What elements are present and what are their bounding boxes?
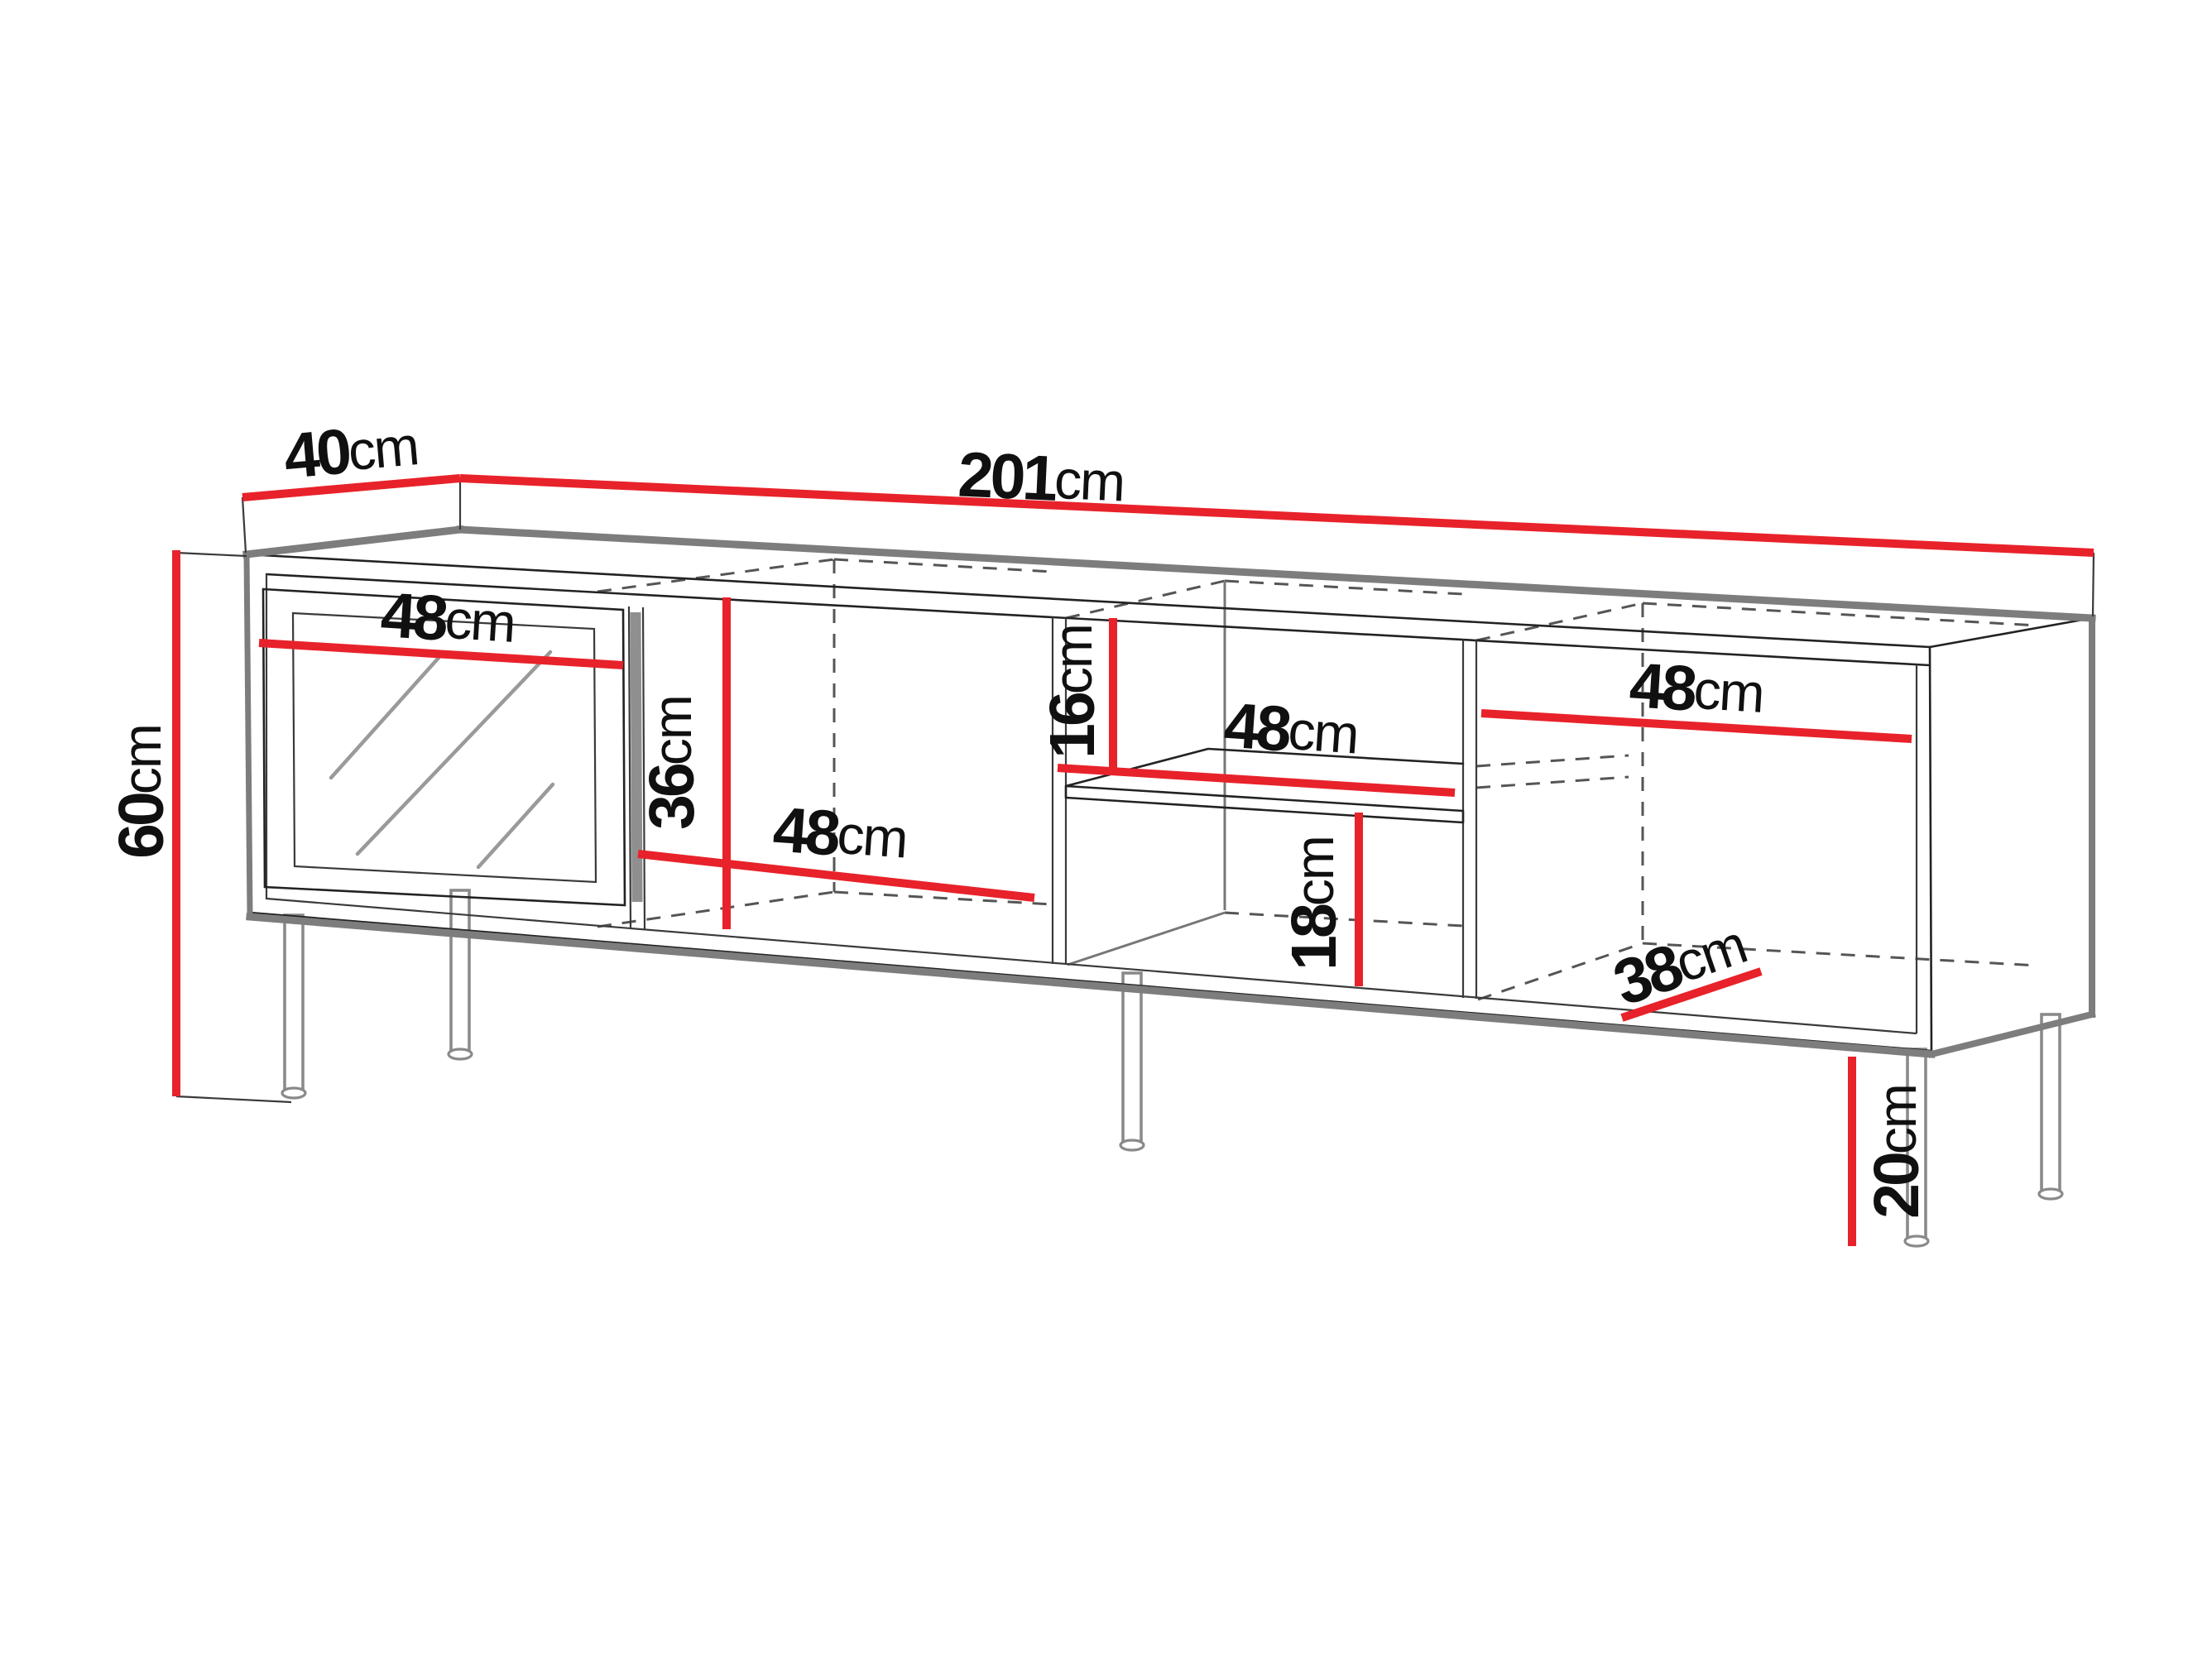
label-interior-height: 36cm [636, 696, 708, 830]
leg-back-right [2039, 1014, 2062, 1199]
divider-shading [636, 612, 637, 902]
leg-middle [1120, 973, 1144, 1150]
leg-front-left [282, 915, 305, 1098]
label-leg-height: 20cm [1861, 1085, 1932, 1219]
divider-3 [1463, 640, 1476, 999]
label-height: 60cm [106, 725, 177, 859]
hidden-shelf-edges [1476, 755, 1629, 788]
glass-reflection-lines [331, 652, 553, 867]
label-right-compartment-width: 48cm [1628, 650, 1766, 729]
label-below-shelf-height: 18cm [1279, 837, 1350, 971]
label-middle-compartment-width: 48cm [770, 794, 909, 874]
label-shelf-width: 48cm [1221, 689, 1360, 770]
tv-stand-drawing: 40cm 201cm 60cm 48cm 36cm 48cm 16cm 48cm… [0, 0, 2212, 1659]
label-above-shelf-height: 16cm [1037, 625, 1108, 759]
dimension-diagram: 40cm 201cm 60cm 48cm 36cm 48cm 16cm 48cm… [0, 0, 2212, 1659]
label-width: 201cm [957, 439, 1125, 517]
label-door-width: 48cm [379, 579, 517, 659]
